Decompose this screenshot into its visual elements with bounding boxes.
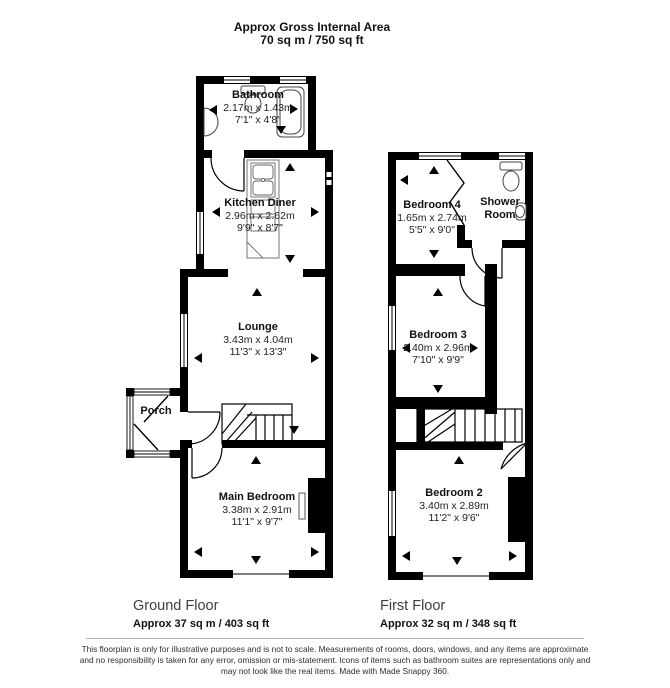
- room-label-porch: Porch: [140, 405, 171, 418]
- room-label-bedroom-4: Bedroom 4 1.65m x 2.74m 5'5" x 9'0": [397, 199, 466, 237]
- window: [423, 573, 489, 579]
- door-arc: [472, 248, 502, 278]
- chimney-breast: [308, 478, 333, 533]
- gross-area-value: 70 sq m / 750 sq ft: [0, 34, 624, 47]
- door-arc: [188, 412, 220, 444]
- disclaimer-line-3: may not look like the real items. Made w…: [0, 666, 670, 677]
- radiator-icon: [299, 493, 305, 519]
- floorplan-page: Approx Gross Internal Area 70 sq m / 750…: [0, 0, 670, 688]
- floorplan-drawing: [0, 0, 670, 688]
- disclaimer-text: This floorplan is only for illustrative …: [0, 644, 670, 677]
- room-label-kitchen-diner: Kitchen Diner 2.96m x 2.62m 9'9" x 8'7": [224, 197, 296, 235]
- room-label-shower-room: Shower Room: [474, 196, 526, 221]
- room-label-bathroom: Bathroom 2.17m x 1.43m 7'1" x 4'8": [223, 89, 292, 127]
- chimney-breast: [508, 477, 533, 542]
- room-label-bedroom-3: Bedroom 3 2.40m x 2.96m 7'10" x 9'9": [403, 329, 472, 367]
- window: [181, 314, 187, 367]
- staircase-icon: [222, 404, 292, 444]
- toilet-icon: [500, 162, 522, 191]
- ground-floor-label: Ground Floor Approx 37 sq m / 403 sq ft: [133, 598, 269, 630]
- room-label-lounge: Lounge 3.43m x 4.04m 11'3" x 13'3": [223, 321, 292, 359]
- room-label-main-bedroom: Main Bedroom 3.38m x 2.91m 11'1" x 9'7": [219, 491, 295, 529]
- disclaimer-line-2: and no responsibility is taken for any e…: [0, 655, 670, 666]
- staircase-icon: [417, 409, 522, 442]
- door-arc: [501, 443, 527, 469]
- disclaimer-line-1: This floorplan is only for illustrative …: [0, 644, 670, 655]
- page-title: Approx Gross Internal Area 70 sq m / 750…: [0, 21, 624, 47]
- room-label-bedroom-2: Bedroom 2 3.40m x 2.89m 11'2" x 9'6": [419, 487, 488, 525]
- porch-structure: [126, 388, 180, 458]
- window: [233, 571, 289, 577]
- door-arc: [460, 276, 485, 306]
- door-arc: [192, 448, 222, 478]
- window: [197, 212, 203, 254]
- first-floor-label: First Floor Approx 32 sq m / 348 sq ft: [380, 598, 516, 630]
- footer-divider: [86, 638, 584, 639]
- door-arc: [211, 158, 244, 191]
